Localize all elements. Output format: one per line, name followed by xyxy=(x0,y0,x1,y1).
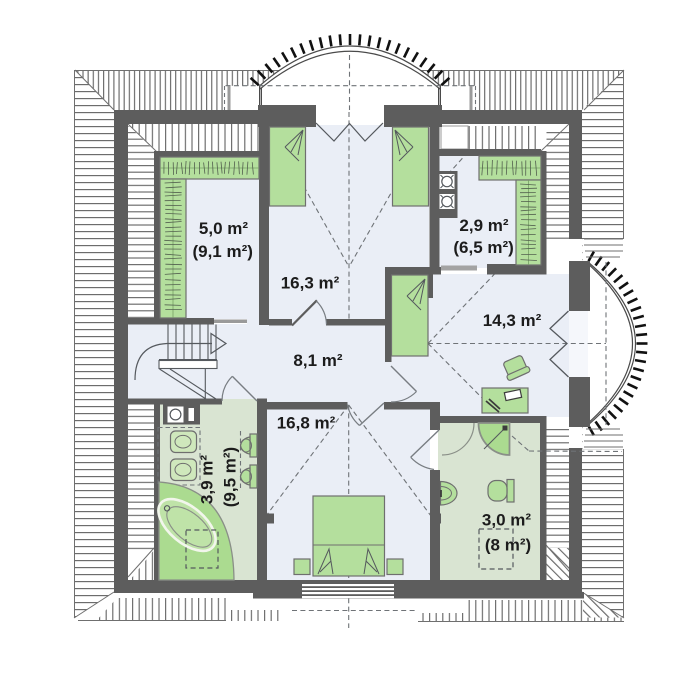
svg-text:16,8 m²: 16,8 m² xyxy=(277,414,336,433)
svg-text:2,9 m²: 2,9 m² xyxy=(459,216,508,235)
svg-text:16,3 m²: 16,3 m² xyxy=(281,274,340,293)
svg-text:8,1 m²: 8,1 m² xyxy=(293,351,342,370)
svg-text:3,0 m²: 3,0 m² xyxy=(482,511,531,530)
svg-text:5,0 m²: 5,0 m² xyxy=(199,219,248,238)
svg-text:14,3 m²: 14,3 m² xyxy=(483,311,542,330)
svg-text:(6,5 m²): (6,5 m²) xyxy=(453,238,513,257)
svg-text:(9,5 m²): (9,5 m²) xyxy=(221,447,240,507)
svg-text:3,9 m²: 3,9 m² xyxy=(198,455,217,504)
svg-text:(8 m²): (8 m²) xyxy=(485,536,531,555)
svg-text:(9,1 m²): (9,1 m²) xyxy=(192,242,252,261)
